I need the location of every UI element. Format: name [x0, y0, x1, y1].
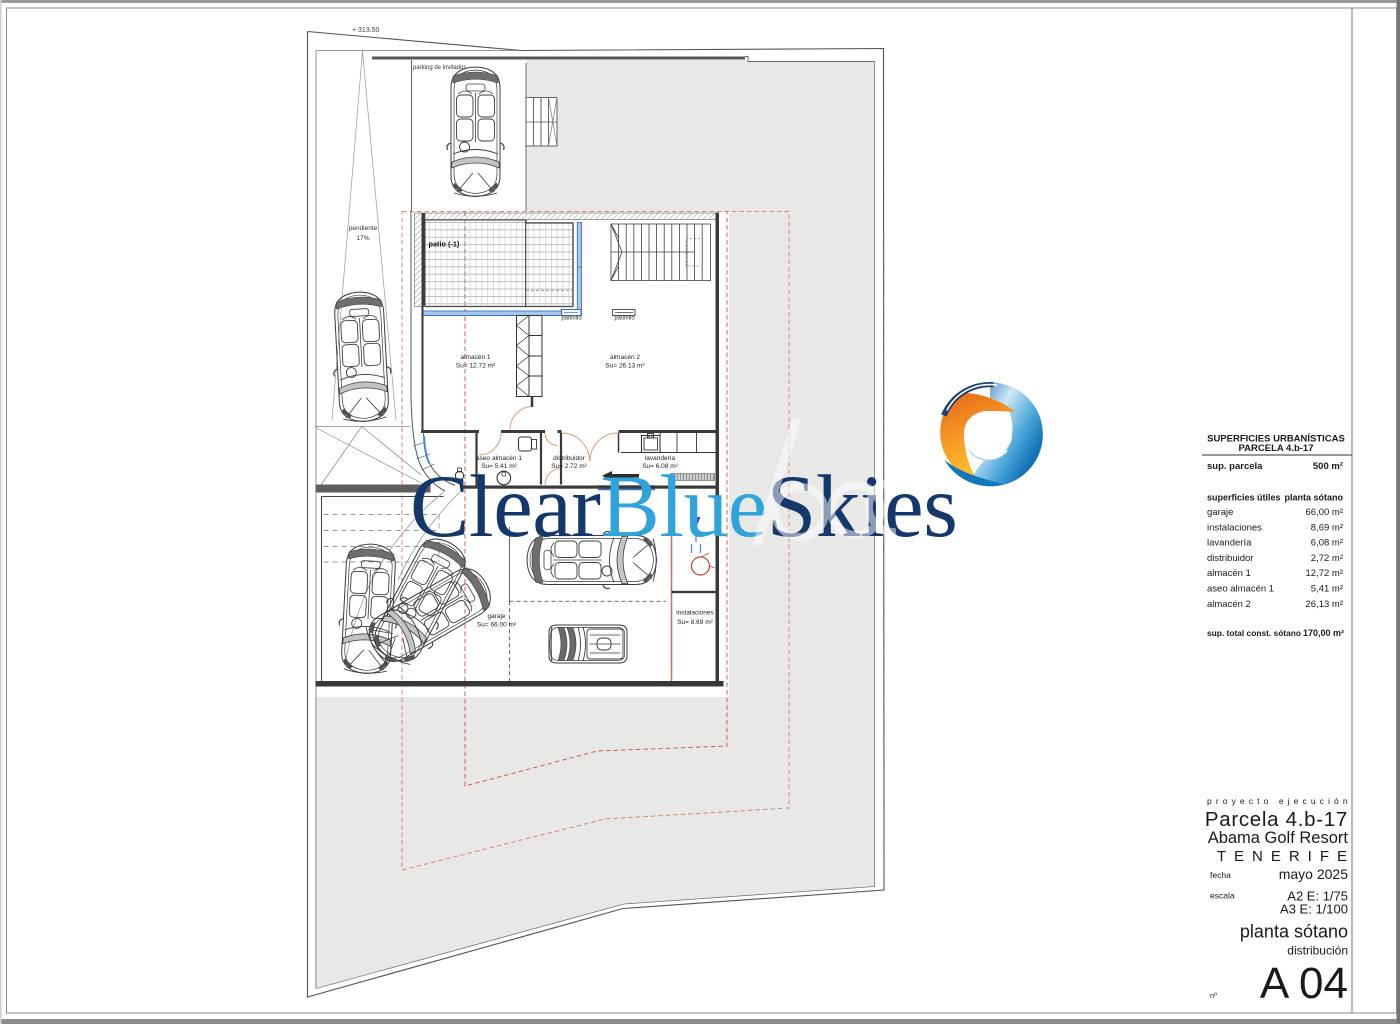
svg-text:patinillo: patinillo — [614, 316, 635, 322]
svg-text:superficies útiles: superficies útiles — [1207, 493, 1281, 503]
svg-text:Su= 12.72 m²: Su= 12.72 m² — [456, 363, 496, 370]
svg-text:12,72 m²: 12,72 m² — [1306, 568, 1344, 579]
svg-text:PARCELA 4.b-17: PARCELA 4.b-17 — [1239, 443, 1314, 454]
svg-text:lavandería: lavandería — [1207, 538, 1252, 549]
svg-text:26,13 m²: 26,13 m² — [1306, 599, 1344, 610]
svg-text:6,08 m²: 6,08 m² — [1311, 538, 1343, 549]
svg-text:Su= 66.00 m²: Su= 66.00 m² — [477, 622, 517, 629]
svg-text:nº: nº — [1210, 991, 1217, 1000]
svg-text:A 04: A 04 — [1260, 959, 1348, 1008]
svg-text:+ 313.50: + 313.50 — [352, 27, 380, 34]
svg-text:garaje: garaje — [487, 613, 505, 620]
svg-text:sup. total const. sótano: sup. total const. sótano — [1207, 628, 1301, 638]
svg-text:66,00 m²: 66,00 m² — [1306, 507, 1344, 518]
svg-text:escala: escala — [1210, 891, 1235, 901]
svg-text:aseo almacén 1: aseo almacén 1 — [1207, 584, 1274, 595]
svg-text:5,41 m²: 5,41 m² — [1311, 584, 1343, 595]
svg-text:ClearBlueSkies: ClearBlueSkies — [410, 458, 957, 556]
svg-text:almacén 1: almacén 1 — [461, 354, 491, 361]
svg-text:sup. parcela: sup. parcela — [1207, 461, 1263, 472]
svg-text:garaje: garaje — [1207, 507, 1233, 518]
svg-text:fecha: fecha — [1210, 870, 1231, 880]
svg-text:instalaciones: instalaciones — [1207, 522, 1262, 533]
svg-text:almacén 2: almacén 2 — [1207, 599, 1251, 610]
svg-text:Parcela 4.b-17: Parcela 4.b-17 — [1205, 808, 1348, 831]
svg-text:patio (-1): patio (-1) — [429, 240, 460, 249]
svg-text:pendiente: pendiente — [349, 225, 378, 232]
svg-text:Abama Golf Resort: Abama Golf Resort — [1208, 829, 1349, 847]
svg-text:Su= 8.69 m²: Su= 8.69 m² — [677, 619, 713, 626]
svg-text:instalaciones: instalaciones — [676, 610, 714, 617]
svg-text:planta sótano: planta sótano — [1284, 493, 1343, 503]
svg-text:2,72 m²: 2,72 m² — [1311, 553, 1343, 564]
svg-text:A3 E: 1/100: A3 E: 1/100 — [1280, 902, 1348, 917]
svg-text:Su= 26.13 m²: Su= 26.13 m² — [605, 363, 645, 370]
svg-text:proyecto ejecución: proyecto ejecución — [1207, 796, 1352, 806]
svg-text:TENERIFE: TENERIFE — [1217, 848, 1355, 865]
svg-text:500 m²: 500 m² — [1313, 461, 1343, 472]
svg-text:almacén 1: almacén 1 — [1207, 568, 1251, 579]
svg-text:mayo 2025: mayo 2025 — [1279, 866, 1348, 882]
svg-text:17%: 17% — [356, 235, 369, 242]
svg-text:almacén 2: almacén 2 — [610, 354, 640, 361]
svg-text:distribución: distribución — [1287, 944, 1348, 958]
svg-text:distribuidor: distribuidor — [1207, 553, 1253, 564]
svg-text:8,69 m²: 8,69 m² — [1311, 522, 1343, 533]
svg-text:parking de invitados: parking de invitados — [413, 65, 466, 71]
svg-text:planta sótano: planta sótano — [1240, 922, 1348, 942]
svg-text:170,00 m²: 170,00 m² — [1303, 628, 1344, 638]
svg-text:patinillo: patinillo — [561, 316, 582, 322]
